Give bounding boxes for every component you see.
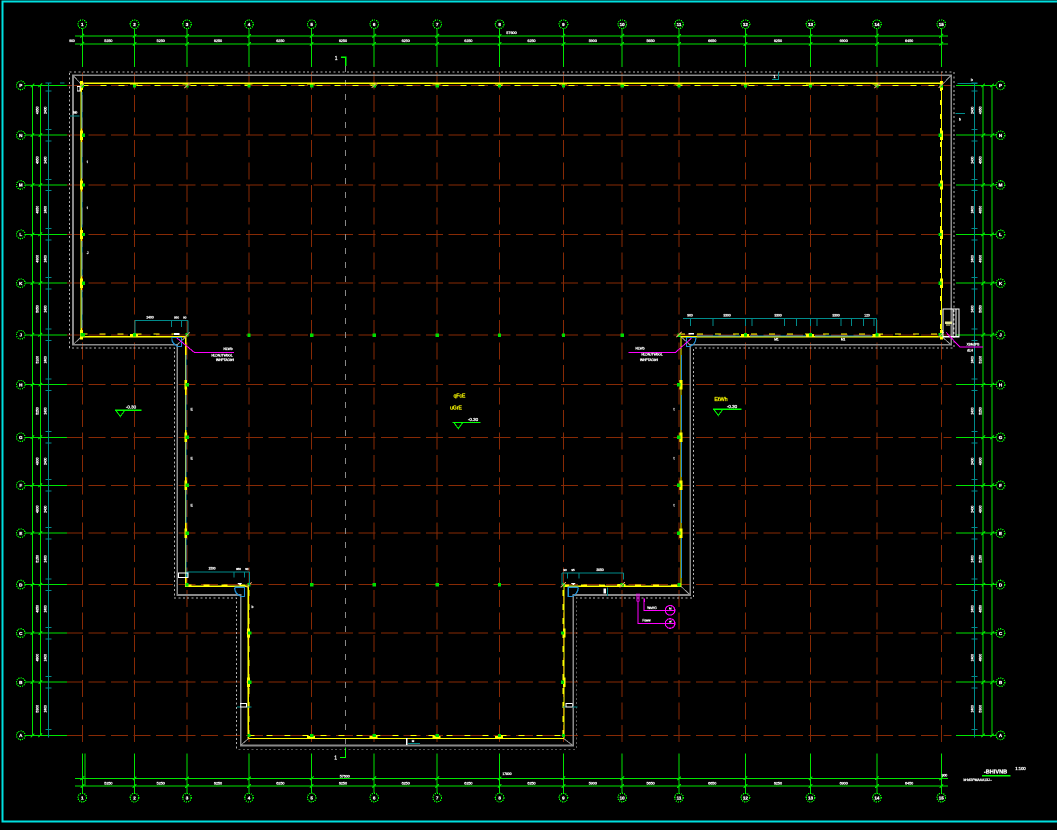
svg-text:950: 950 — [236, 567, 241, 571]
svg-text:12: 12 — [743, 22, 749, 27]
svg-text:2400: 2400 — [970, 156, 974, 163]
svg-text:4: 4 — [248, 22, 251, 27]
svg-text:5050: 5050 — [36, 305, 40, 313]
svg-text:3: 3 — [186, 22, 189, 27]
svg-text:2400: 2400 — [44, 305, 48, 312]
svg-text:5650: 5650 — [646, 39, 654, 43]
svg-text:5250: 5250 — [979, 407, 983, 415]
svg-text:J: J — [999, 333, 1002, 338]
svg-text:NLWb: NLWb — [223, 347, 232, 351]
svg-text:M: M — [999, 183, 1003, 188]
svg-text:6900: 6900 — [840, 39, 848, 43]
svg-text:G: G — [19, 435, 23, 440]
svg-text:G: G — [999, 435, 1003, 440]
svg-text:8: 8 — [498, 795, 501, 800]
svg-text:3300: 3300 — [723, 314, 731, 318]
svg-text:4: 4 — [248, 795, 251, 800]
svg-text:2400: 2400 — [970, 107, 974, 114]
svg-text:6250: 6250 — [276, 39, 284, 43]
svg-text:6250: 6250 — [214, 781, 222, 785]
svg-text:6: 6 — [373, 795, 376, 800]
svg-text:6450: 6450 — [905, 781, 913, 785]
svg-text:900: 900 — [69, 39, 75, 43]
svg-text:6900: 6900 — [840, 781, 848, 785]
svg-text:1500: 1500 — [208, 567, 215, 571]
svg-text:6250: 6250 — [339, 781, 347, 785]
svg-text:1: 1 — [81, 22, 84, 27]
svg-text:5250: 5250 — [36, 407, 40, 415]
svg-text:3: 3 — [186, 795, 189, 800]
svg-text:dLH: dLH — [967, 349, 974, 353]
svg-text:E: E — [999, 531, 1002, 536]
svg-text:t: t — [87, 206, 88, 210]
svg-text:F: F — [19, 483, 22, 488]
svg-text:7: 7 — [436, 795, 439, 800]
svg-text:4950: 4950 — [979, 206, 983, 214]
svg-text:2400: 2400 — [970, 705, 974, 712]
svg-text:2400: 2400 — [970, 407, 974, 414]
svg-text:EtWh: EtWh — [714, 397, 727, 403]
svg-text:XBMJPB: XBMJPB — [967, 342, 980, 346]
svg-text:t: t — [674, 408, 675, 412]
svg-text:J: J — [20, 333, 23, 338]
svg-text:uGrE: uGrE — [450, 405, 462, 411]
svg-text:5250: 5250 — [157, 39, 165, 43]
svg-text:6250: 6250 — [774, 781, 782, 785]
svg-text:2400: 2400 — [146, 315, 154, 319]
svg-text:2400: 2400 — [970, 305, 974, 312]
svg-text:3300: 3300 — [832, 314, 840, 318]
svg-text:6450: 6450 — [905, 39, 913, 43]
svg-text:8: 8 — [498, 22, 501, 27]
svg-text:95: 95 — [571, 568, 575, 572]
svg-text:b: b — [252, 605, 254, 609]
svg-text:-0.30: -0.30 — [126, 405, 137, 410]
svg-text:120: 120 — [864, 314, 870, 318]
svg-text:2400: 2400 — [970, 458, 974, 465]
svg-text:11: 11 — [677, 22, 682, 27]
svg-text:2400: 2400 — [44, 458, 48, 465]
svg-text:90: 90 — [563, 568, 567, 572]
svg-text:5900: 5900 — [589, 781, 597, 785]
svg-text:qFcE: qFcE — [454, 394, 466, 400]
svg-text:4800: 4800 — [979, 457, 983, 465]
svg-text:t: t — [674, 504, 675, 508]
svg-text:3050: 3050 — [596, 568, 604, 572]
svg-text:1:100: 1:100 — [1015, 766, 1026, 771]
svg-text:13: 13 — [808, 22, 814, 27]
svg-text:5: 5 — [310, 22, 313, 27]
svg-text:6250: 6250 — [464, 39, 472, 43]
svg-text:2400: 2400 — [44, 206, 48, 213]
svg-text:b: b — [959, 117, 961, 121]
svg-text:1: 1 — [335, 56, 338, 62]
svg-text:5100: 5100 — [36, 356, 40, 364]
svg-text:4950: 4950 — [979, 156, 983, 164]
svg-text:P: P — [19, 83, 22, 88]
svg-text:WsHG: WsHG — [647, 606, 657, 610]
svg-text:57600: 57600 — [506, 31, 517, 35]
svg-text:10: 10 — [620, 22, 626, 27]
svg-text:4950: 4950 — [36, 206, 40, 214]
svg-text:4800: 4800 — [36, 457, 40, 465]
svg-text:6250: 6250 — [527, 781, 535, 785]
svg-text:NLWb: NLWb — [635, 346, 644, 350]
svg-text:5650: 5650 — [646, 781, 654, 785]
svg-text:4950: 4950 — [979, 106, 983, 114]
svg-text:1: 1 — [334, 756, 337, 762]
svg-text:6650: 6650 — [708, 39, 716, 43]
svg-text:Fsww: Fsww — [642, 619, 651, 623]
svg-text:900: 900 — [942, 774, 948, 778]
svg-text:2400: 2400 — [44, 255, 48, 262]
svg-text:b: b — [971, 78, 973, 82]
svg-text:4800: 4800 — [36, 505, 40, 513]
svg-text:9: 9 — [562, 22, 565, 27]
svg-text:5300: 5300 — [36, 705, 40, 713]
svg-text:14: 14 — [874, 795, 880, 800]
svg-text:6250: 6250 — [464, 781, 472, 785]
svg-text:2400: 2400 — [970, 356, 974, 363]
svg-text:5300: 5300 — [979, 705, 983, 713]
svg-text:4950: 4950 — [36, 106, 40, 114]
svg-text:57600: 57600 — [340, 774, 350, 778]
svg-text:tNHPTAGbH: tNHPTAGbH — [640, 358, 659, 362]
svg-text:1: 1 — [773, 74, 776, 79]
svg-text:6250: 6250 — [402, 781, 410, 785]
svg-text:11: 11 — [677, 795, 682, 800]
svg-text:9: 9 — [562, 795, 565, 800]
svg-text:6250: 6250 — [527, 39, 535, 43]
svg-text:2400: 2400 — [44, 555, 48, 562]
svg-text:3300: 3300 — [774, 314, 782, 318]
svg-text:15: 15 — [939, 22, 945, 27]
svg-text:5100: 5100 — [979, 356, 983, 364]
svg-text:1: 1 — [81, 795, 84, 800]
svg-text:2: 2 — [133, 795, 136, 800]
svg-text:950: 950 — [174, 315, 179, 319]
svg-text:4850: 4850 — [36, 605, 40, 613]
svg-text:t: t — [674, 457, 675, 461]
svg-text:2400: 2400 — [970, 206, 974, 213]
svg-text:sf: sf — [669, 620, 671, 624]
svg-text:4950: 4950 — [36, 156, 40, 164]
svg-text:14: 14 — [874, 22, 880, 27]
svg-text:5: 5 — [310, 795, 313, 800]
svg-text:4850: 4850 — [979, 605, 983, 613]
svg-text:10: 10 — [620, 795, 626, 800]
svg-text:-BHIVNB: -BHIVNB — [984, 770, 1007, 776]
svg-text:5150: 5150 — [979, 555, 983, 563]
svg-text:2400: 2400 — [44, 505, 48, 512]
svg-text:6650: 6650 — [708, 781, 716, 785]
svg-text:12: 12 — [743, 795, 749, 800]
svg-text:90: 90 — [183, 315, 187, 319]
svg-text:6250: 6250 — [339, 39, 347, 43]
svg-text:900: 900 — [687, 314, 693, 318]
svg-text:2400: 2400 — [970, 255, 974, 262]
svg-text:7: 7 — [436, 22, 439, 27]
svg-text:2400: 2400 — [44, 654, 48, 661]
svg-text:2400: 2400 — [970, 605, 974, 612]
svg-text:2400: 2400 — [44, 156, 48, 163]
svg-text:4900: 4900 — [979, 654, 983, 662]
svg-text:5150: 5150 — [36, 555, 40, 563]
svg-text:t: t — [87, 160, 88, 164]
svg-text:2400: 2400 — [970, 505, 974, 512]
svg-text:L: L — [19, 232, 22, 237]
svg-text:2400: 2400 — [44, 605, 48, 612]
svg-text:2400: 2400 — [44, 107, 48, 114]
svg-text:5250: 5250 — [157, 781, 165, 785]
svg-text:bHdGPMAAA13J--: bHdGPMAAA13J-- — [964, 778, 992, 782]
svg-text:NLDNJTWbGL: NLDNJTWbGL — [641, 352, 662, 356]
svg-text:M1: M1 — [841, 338, 846, 342]
svg-text:4900: 4900 — [36, 654, 40, 662]
svg-text:5250: 5250 — [104, 39, 112, 43]
svg-text:4900: 4900 — [979, 255, 983, 263]
svg-text:2400: 2400 — [970, 654, 974, 661]
svg-text:E: E — [19, 531, 22, 536]
svg-text:6250: 6250 — [276, 781, 284, 785]
svg-text:2400: 2400 — [44, 356, 48, 363]
svg-text:M1: M1 — [774, 338, 779, 342]
svg-text:5900: 5900 — [589, 39, 597, 43]
svg-text:6250: 6250 — [402, 39, 410, 43]
svg-text:90: 90 — [245, 567, 249, 571]
svg-text:4900: 4900 — [36, 255, 40, 263]
svg-text:J: J — [87, 251, 89, 255]
svg-text:5250: 5250 — [104, 781, 112, 785]
svg-text:6250: 6250 — [774, 39, 782, 43]
svg-text:2400: 2400 — [44, 705, 48, 712]
svg-text:-0.30: -0.30 — [727, 404, 738, 409]
svg-text:13: 13 — [808, 795, 814, 800]
svg-text:2400: 2400 — [44, 407, 48, 414]
svg-text:5050: 5050 — [979, 305, 983, 313]
svg-text:-0.30: -0.30 — [468, 417, 479, 422]
svg-text:15: 15 — [939, 795, 945, 800]
svg-text:P: P — [999, 83, 1002, 88]
svg-text:F: F — [999, 483, 1002, 488]
svg-text:6250: 6250 — [214, 39, 222, 43]
svg-text:6: 6 — [373, 22, 376, 27]
svg-text:2: 2 — [133, 22, 136, 27]
svg-text:M: M — [19, 183, 23, 188]
svg-text:17800: 17800 — [502, 772, 511, 776]
svg-text:2400: 2400 — [970, 555, 974, 562]
svg-text:lab: lab — [73, 111, 77, 115]
svg-text:4800: 4800 — [979, 505, 983, 513]
svg-text:tNHPTAGbH: tNHPTAGbH — [216, 358, 235, 362]
svg-text:NLDNJTWbGL: NLDNJTWbGL — [211, 353, 232, 357]
svg-text:L: L — [999, 232, 1002, 237]
